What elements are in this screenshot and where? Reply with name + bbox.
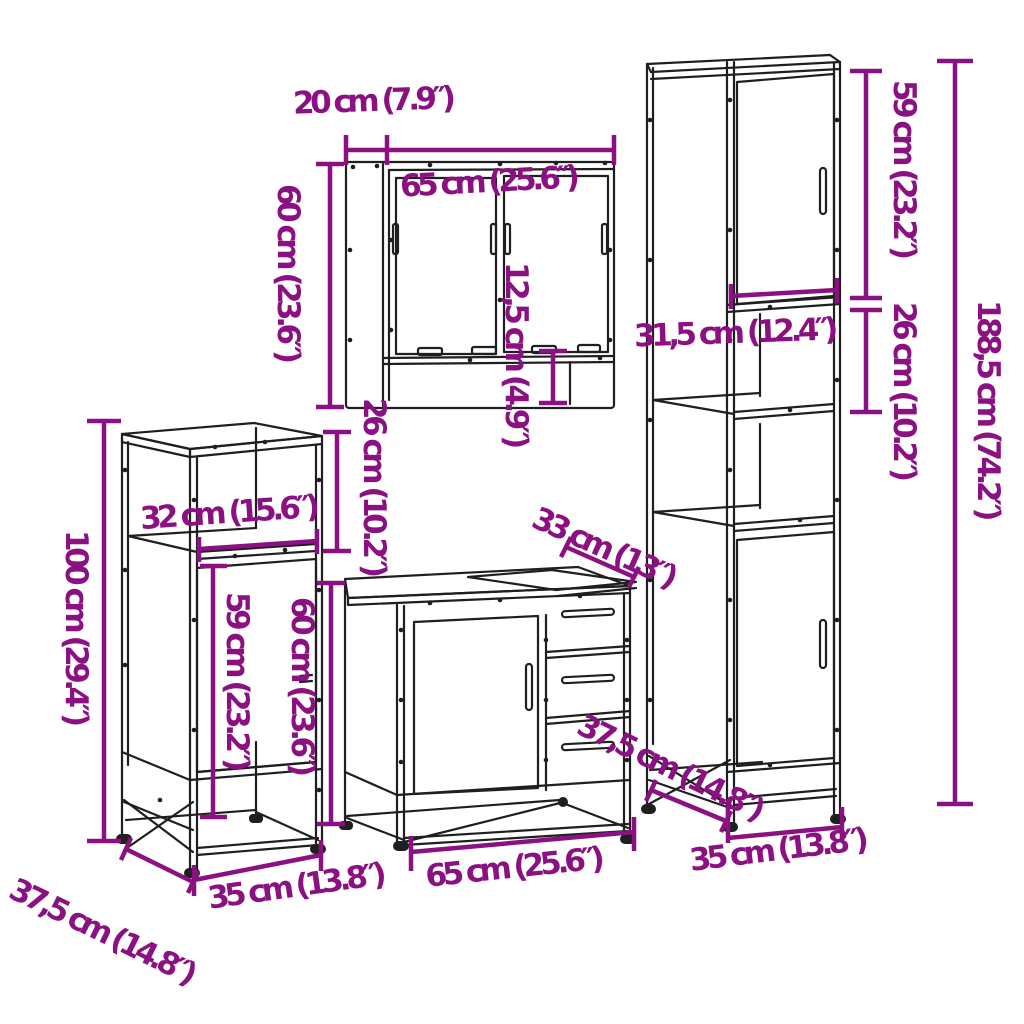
- sink-cabinet-drawing: [345, 567, 636, 845]
- dim-label-mirror-bottom: 26 cm (10.2″): [358, 398, 389, 574]
- dim-label-side-door-height: 59 cm (23.2″): [221, 592, 252, 768]
- dim-label-tall-inner-width: 31,5 cm (12.4″): [634, 315, 835, 353]
- dim-line-tall-upper-door: [850, 71, 882, 298]
- dim-label-mirror-height: 60 cm (23.6″): [272, 184, 303, 360]
- dim-line-mirror-height: [316, 164, 344, 407]
- dim-label-mirror-shelf: 12,5 cm (4.9″): [500, 262, 531, 445]
- dim-label-mirror-depth: 20 cm (7.9″): [293, 83, 453, 120]
- dim-line-mirror-shelf: [539, 351, 567, 403]
- dim-label-tall-height: 188,5 cm (74.2″): [972, 300, 1003, 517]
- dim-label-side-front-height: 60 cm (23.6″): [286, 597, 317, 773]
- dim-line-tall-height: [937, 61, 973, 804]
- dim-label-side-height: 100 cm (29.4″): [60, 530, 91, 723]
- tall-cabinet-drawing: [647, 55, 840, 826]
- dim-label-tall-shelf-section: 26 cm (10.2″): [888, 302, 919, 478]
- dim-label-mirror-width: 65 cm (25.6″): [399, 162, 576, 202]
- dimension-diagram: 20 cm (7.9″) 65 cm (25.6″) 60 cm (23.6″)…: [0, 0, 1024, 1024]
- dim-line-tall-shelf-section: [850, 310, 882, 412]
- dim-label-tall-upper-door: 59 cm (23.2″): [888, 80, 919, 256]
- dim-line-mirror-bottom: [323, 432, 351, 551]
